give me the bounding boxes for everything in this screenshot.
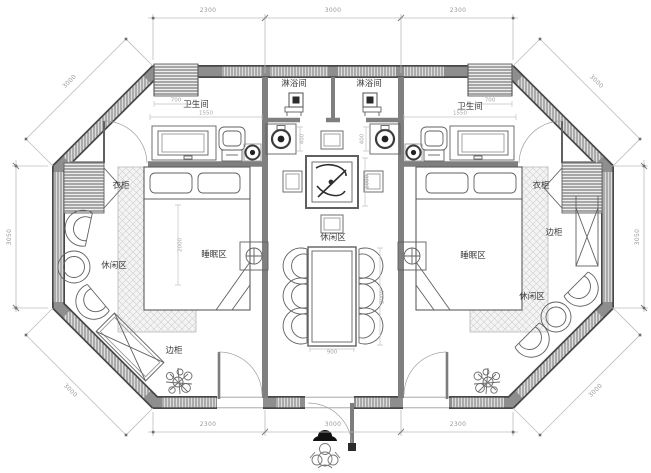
- dim-top-center: 3000: [325, 8, 341, 14]
- label-wardrobe-left: 衣柜: [112, 182, 129, 191]
- minor-dim: 1550: [199, 111, 213, 117]
- floor-plan-canvas: 淋浴间 淋浴间 卫生间 卫生间 衣柜 衣柜 睡眠区 睡眠区 休闲区 休闲区 休闲…: [0, 0, 651, 473]
- label-cabinet-left: 边柜: [165, 347, 182, 356]
- minor-dim: 900: [327, 350, 338, 356]
- wash-basin: [266, 124, 296, 154]
- dim-top-right: 2300: [450, 8, 466, 14]
- dining-table: [308, 247, 356, 346]
- label-sleep-right: 睡眠区: [460, 252, 486, 261]
- minor-dim: 2000: [178, 238, 184, 252]
- round-basin: [244, 144, 261, 161]
- dim-top-left: 2300: [200, 8, 216, 14]
- label-shower-right: 淋浴间: [356, 80, 382, 89]
- dim-left-side: 3050: [7, 229, 13, 245]
- label-cabinet-right: 边柜: [545, 229, 562, 238]
- vanity: [152, 126, 216, 160]
- label-lounge-left: 休闲区: [101, 262, 127, 271]
- tea-stool-bottom: [321, 215, 343, 233]
- minor-dim: 2000: [380, 290, 386, 304]
- label-wardrobe-right: 衣柜: [532, 182, 549, 191]
- label-lounge-right: 休闲区: [519, 293, 545, 302]
- shower-drain: [289, 93, 303, 107]
- minor-dim: 400: [360, 134, 366, 145]
- toilet: [219, 127, 245, 161]
- bath-cabinet: [154, 64, 198, 96]
- dining-chairs-left: [283, 248, 307, 344]
- label-sleep-left: 睡眠区: [201, 251, 227, 260]
- dim-bottom-left: 2300: [200, 422, 216, 428]
- tea-stool-left: [283, 171, 302, 192]
- shower-bench: [285, 107, 303, 116]
- tea-table: [306, 156, 358, 208]
- bath-door: [104, 121, 147, 163]
- dim-bottom-right: 2300: [450, 422, 466, 428]
- minor-dim: 1000: [365, 175, 371, 189]
- dim-bottom-center: 3000: [325, 422, 341, 428]
- dim-right-side: 3050: [635, 229, 641, 245]
- minor-dim: 400: [300, 134, 306, 145]
- label-bath-left: 卫生间: [183, 101, 209, 110]
- minor-dim: 700: [171, 98, 182, 104]
- wall-openings: [217, 397, 449, 408]
- dimension-endpoints: [15, 17, 646, 437]
- bed: [144, 167, 250, 310]
- bedroom-door: [219, 352, 262, 399]
- plant: [166, 368, 192, 394]
- statue-figure: [310, 430, 340, 468]
- tea-stool-top: [321, 131, 343, 149]
- minor-dim: 1550: [453, 111, 467, 117]
- label-shower-left: 淋浴间: [281, 80, 307, 89]
- label-lounge-center: 休闲区: [320, 234, 346, 243]
- minor-dim: 700: [485, 98, 496, 104]
